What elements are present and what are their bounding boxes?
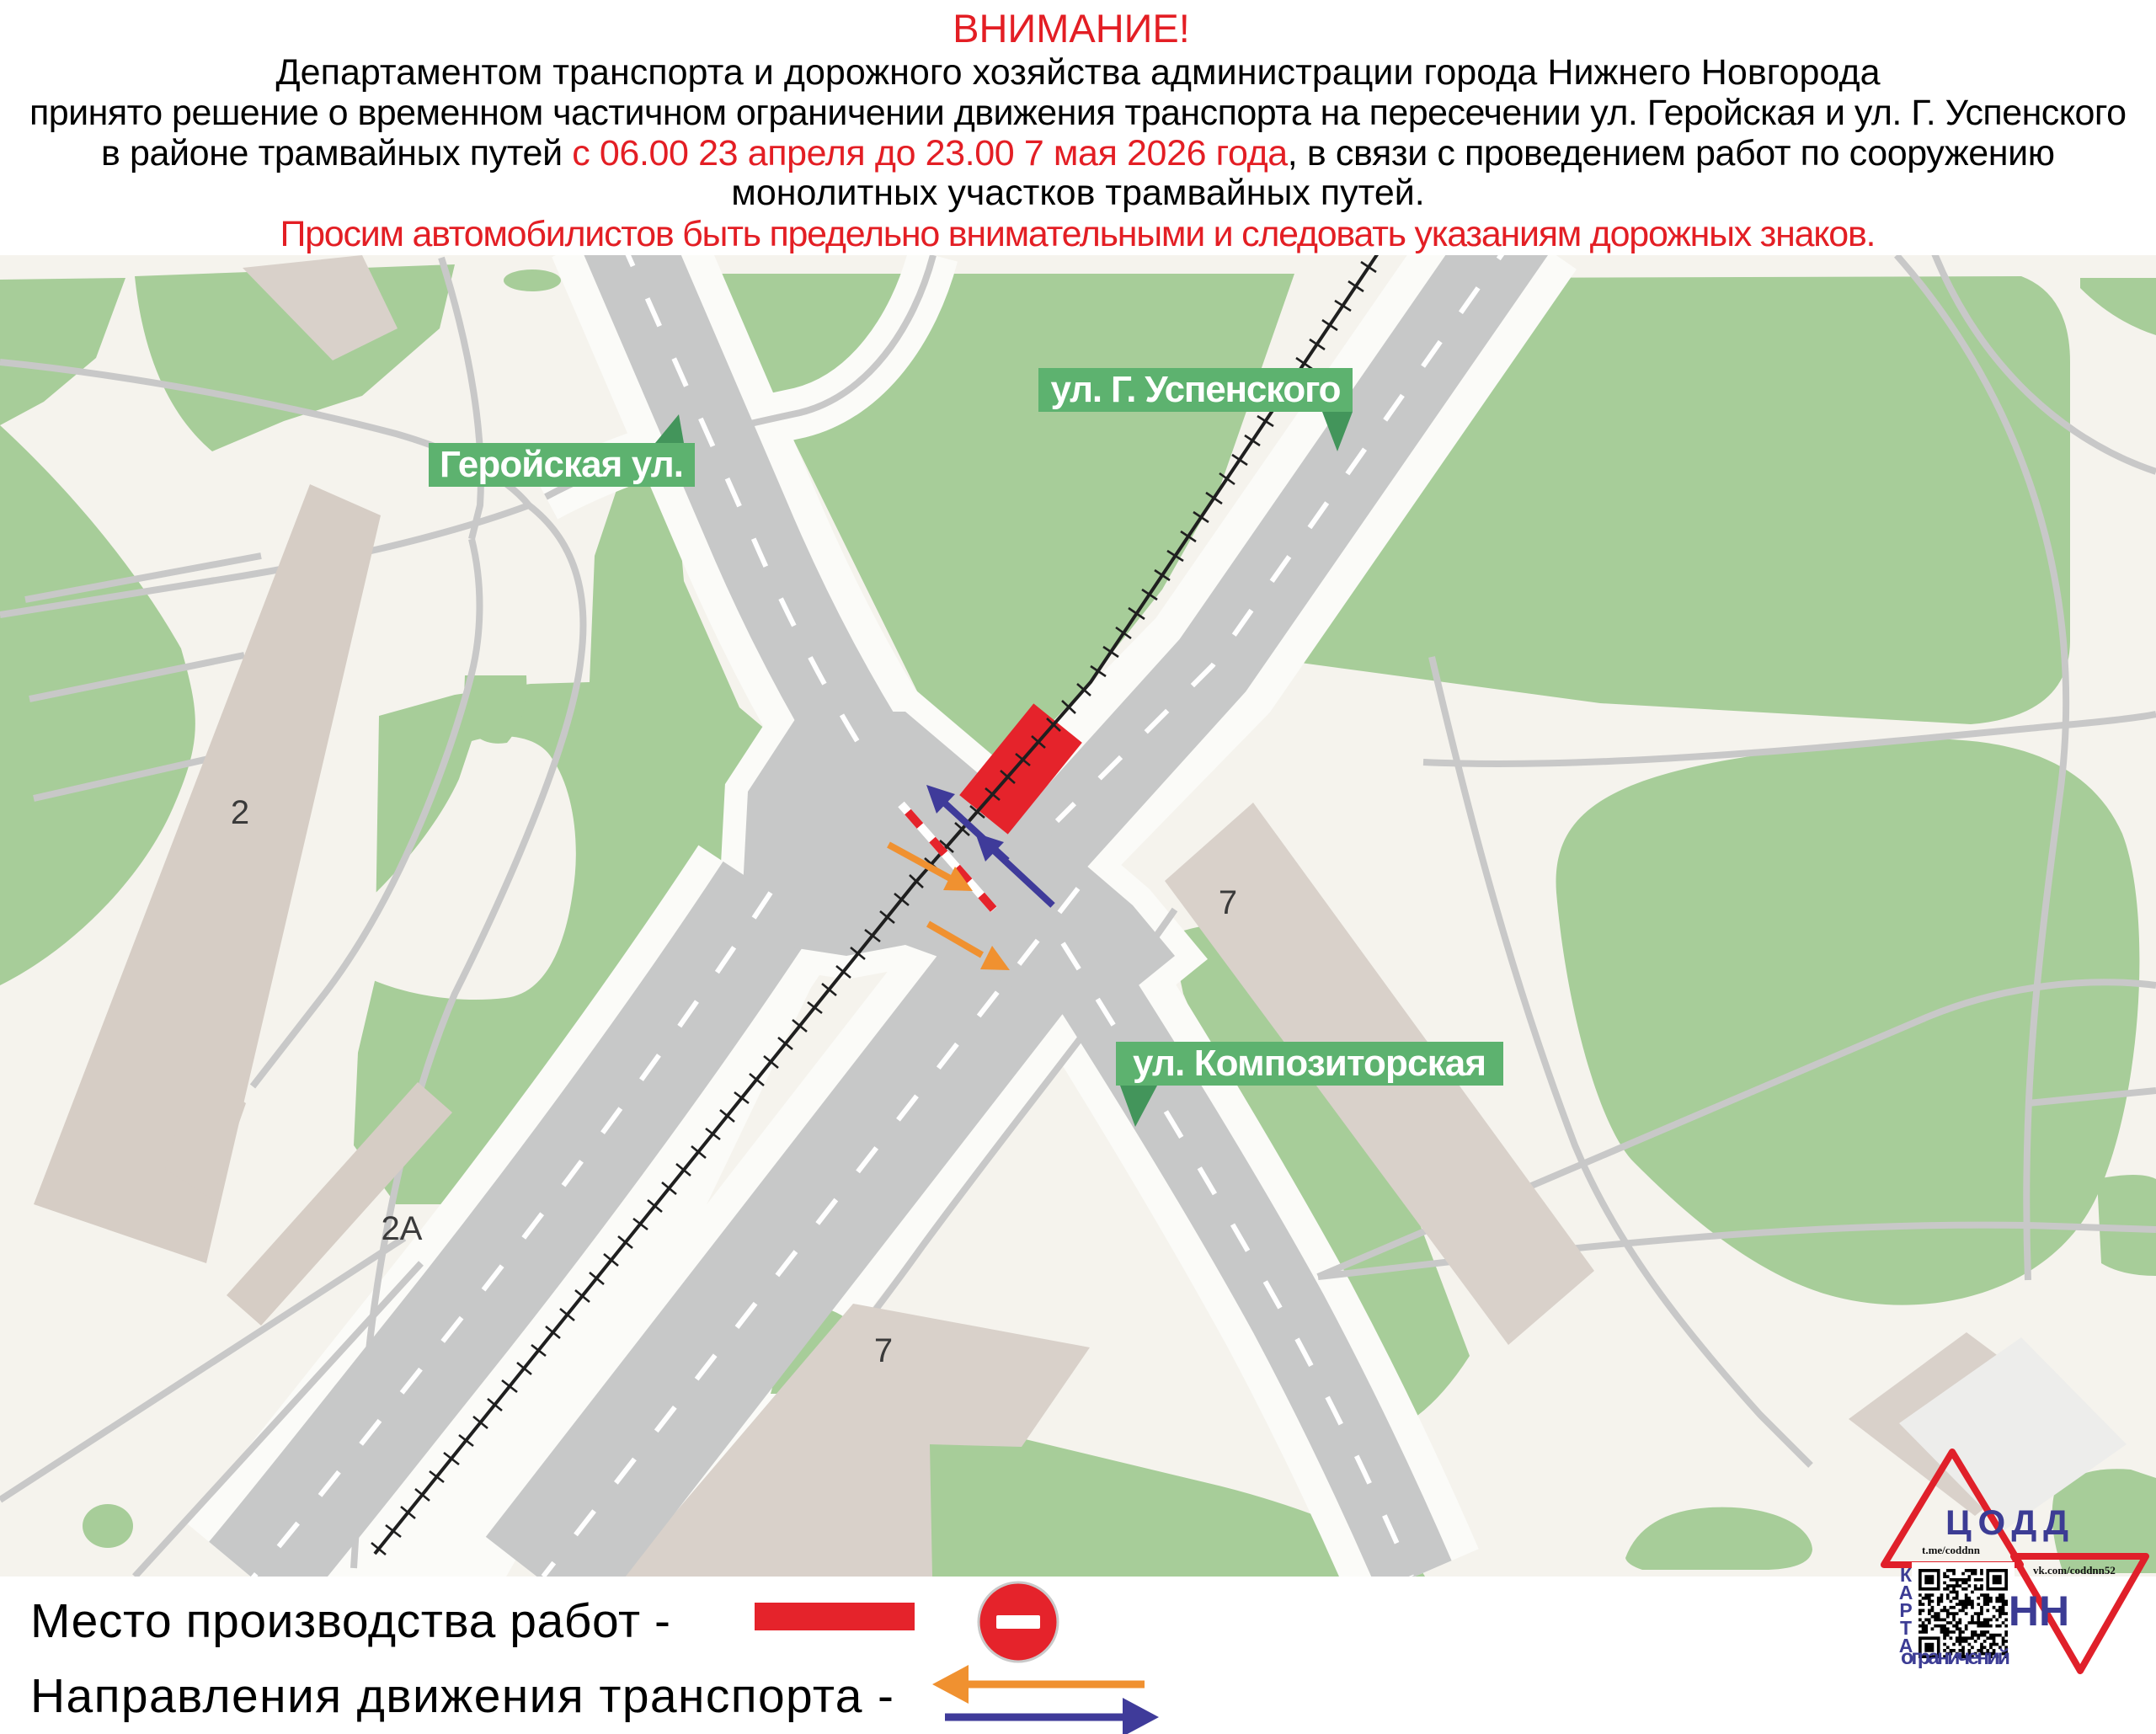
svg-text:Направления движения транспорт: Направления движения транспорта - [30, 1669, 894, 1723]
svg-text:ул. Композиторская: ул. Композиторская [1133, 1043, 1486, 1084]
svg-text:t.me/coddnn: t.me/coddnn [1922, 1544, 1981, 1556]
svg-text:принято решение о временном ч: принято решение о временном частичном ог… [29, 93, 2127, 133]
svg-text:7: 7 [874, 1332, 893, 1369]
svg-text:Место производства работ -: Место производства работ - [30, 1594, 670, 1648]
svg-text:НН: НН [2009, 1587, 2069, 1635]
svg-text:ул. Г. Успенского: ул. Г. Успенского [1051, 369, 1342, 410]
svg-text:7: 7 [1219, 884, 1237, 921]
svg-text:монолитных участков трамвайных: монолитных участков трамвайных путей. [731, 173, 1424, 213]
svg-text:ВНИМАНИЕ!: ВНИМАНИЕ! [953, 6, 1190, 51]
svg-text:2А: 2А [382, 1210, 423, 1247]
svg-text:в районе трамвайных путей с 06: в районе трамвайных путей с 06.00 23 апр… [101, 133, 2055, 173]
svg-text:ограничений: ограничений [1901, 1646, 2010, 1669]
svg-text:vk.com/coddnn52: vk.com/coddnn52 [2033, 1564, 2116, 1577]
svg-text:Департаментом транспорта и дор: Департаментом транспорта и дорожного хоз… [276, 52, 1881, 93]
svg-text:2: 2 [231, 794, 249, 831]
svg-text:Просим автомобилистов быть пре: Просим автомобилистов быть предельно вни… [280, 214, 1876, 254]
svg-text:Геройская ул.: Геройская ул. [440, 444, 684, 485]
